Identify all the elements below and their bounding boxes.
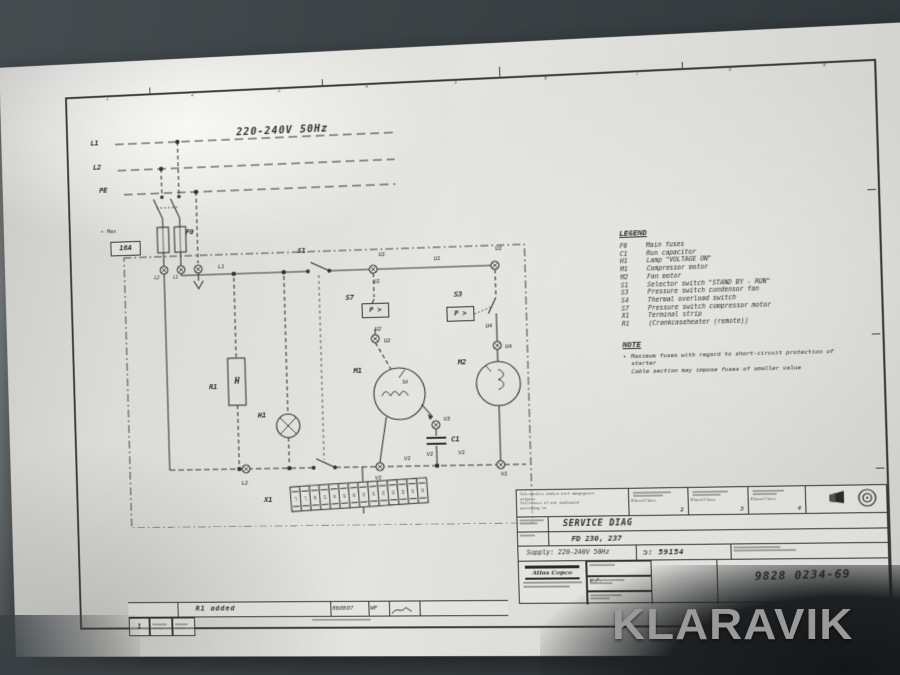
- fuse-rating-box: 16A: [110, 241, 141, 257]
- legend: LEGEND F0Main fusesC1Run capacitorH1Lamp…: [619, 222, 829, 329]
- tolerance-class-2: Klass/Class2: [629, 488, 689, 515]
- wire-label-l2: L2: [93, 162, 101, 171]
- wire-label-v1: V1: [426, 450, 433, 457]
- tolerance-line: according to: [520, 505, 625, 511]
- reference-number: ⊃: 59154: [637, 544, 732, 559]
- revision-description: R1 added: [178, 602, 331, 617]
- wall-shadow-bottom-left: [0, 615, 140, 675]
- supply-field: Supply: 220-240V 50Hz: [518, 545, 637, 560]
- wire-label-l2: L2: [154, 275, 159, 281]
- wire-label-h1: H1: [258, 410, 266, 419]
- revision-strip: R1 added 860807 WF 1: [128, 600, 509, 636]
- legend-items: F0Main fusesC1Run capacitorH1Lamp "VOLTA…: [619, 236, 829, 329]
- wire-label-l1: L1: [218, 263, 225, 270]
- revision-date: 860807: [331, 602, 369, 616]
- revision-header-cell: [172, 617, 195, 636]
- wire-label-u1: U1: [495, 245, 502, 252]
- wire-label-l1: L1: [90, 138, 98, 147]
- wire-label-v1: V1: [404, 455, 411, 462]
- revision-header-cell: [149, 618, 172, 637]
- reference-symbol: ⊃:: [643, 547, 654, 556]
- projection-symbol-cell: [806, 485, 887, 513]
- wire-label-u2: U2: [375, 325, 382, 332]
- revision-initials: WF: [369, 602, 390, 616]
- tolerance-class-3: Klass/Class3: [688, 487, 749, 514]
- schematic-paper-sheet: 123456789: [0, 21, 900, 657]
- wire-label-m1: M1: [353, 365, 362, 374]
- wire-label-f0: F0: [185, 227, 193, 236]
- wire-label-l2: L2: [241, 479, 248, 486]
- wire-label-s3: S3: [454, 289, 463, 298]
- wire-label-x1: X1: [264, 495, 272, 504]
- revision-spacer: [420, 601, 508, 615]
- signature-squiggle: [390, 604, 416, 615]
- wire-label-s1: S1: [297, 245, 305, 254]
- wire-label-pe: PE: [99, 185, 107, 194]
- wire-label-c1: C1: [451, 434, 460, 443]
- note: NOTE Maximum fuses with regard to short-…: [622, 334, 862, 377]
- wire-label-m2: M2: [458, 357, 467, 366]
- pressure-switch-s3-symbol: P >: [446, 306, 474, 322]
- wire-label-u1: U1: [434, 255, 441, 262]
- wire-label-v1: V1: [501, 470, 508, 477]
- max-fuse-note: • Max: [101, 229, 117, 235]
- wire-label-v3: V3: [443, 415, 450, 422]
- wire-label-l1: L1: [173, 275, 178, 281]
- revision-signature: [390, 601, 421, 615]
- photo-of-wiring-diagram: 123456789: [0, 0, 900, 675]
- tolerance-note: Toleranties indien niet aangegevenvolgen…: [517, 489, 630, 517]
- wire-label-s4: S4: [402, 380, 408, 386]
- tolerance-class-4: Klass/Class4: [748, 486, 806, 513]
- wire-label-h: H: [234, 377, 239, 387]
- wire-label-s7: S7: [345, 292, 353, 301]
- wire-label-u4: U4: [485, 322, 492, 329]
- wire-label-u1: U1: [378, 251, 385, 258]
- pressure-switch-s7-symbol: P >: [361, 303, 389, 319]
- x1-terminal: V3: [416, 477, 429, 504]
- replaces-field: [731, 543, 888, 559]
- wire-label-u2: U2: [384, 337, 391, 344]
- wire-label-u1: U1: [373, 278, 380, 285]
- wire-label-r1: R1: [209, 382, 217, 391]
- klaravik-watermark: KLARAVIK: [612, 600, 853, 650]
- first-angle-projection-icon: [825, 486, 887, 512]
- small-print: [312, 619, 371, 621]
- wire-label-u4: U4: [505, 343, 512, 350]
- wire-label-v1: V1: [458, 449, 465, 456]
- model-field-label: [518, 532, 550, 545]
- name-field-label: [517, 517, 549, 531]
